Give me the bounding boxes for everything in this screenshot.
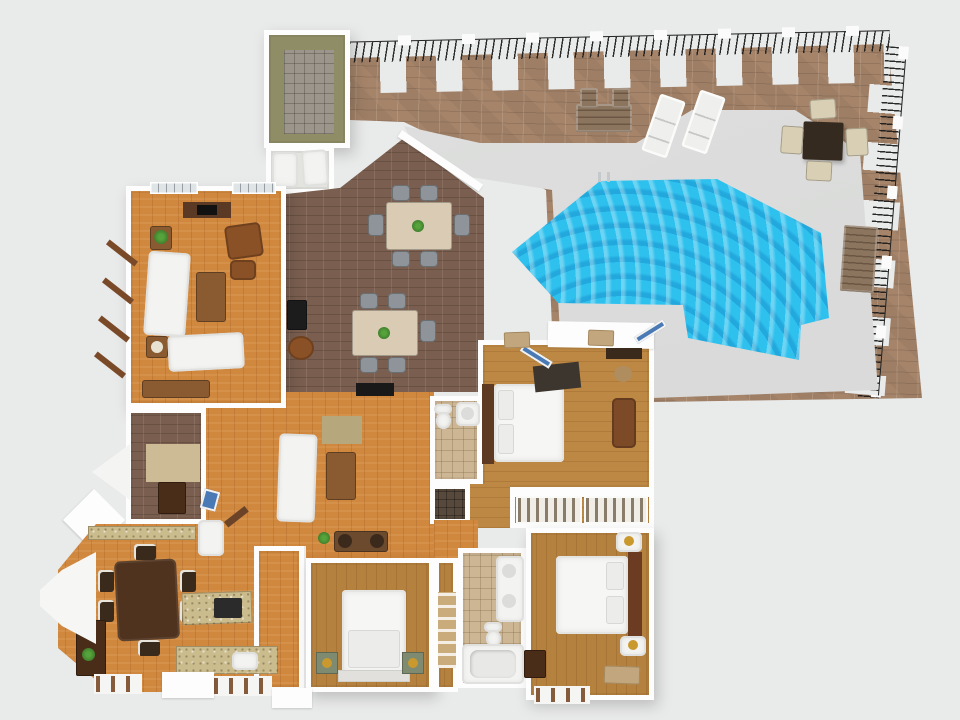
dining-chair — [360, 357, 378, 373]
speaker — [338, 534, 352, 548]
toilet-bowl — [436, 412, 451, 429]
lamp — [628, 640, 638, 650]
outdoor-chair — [580, 88, 598, 108]
speaker — [370, 534, 384, 548]
dining-chair — [368, 214, 384, 236]
basket — [614, 366, 632, 382]
pillow — [606, 562, 624, 590]
plant — [82, 648, 95, 661]
doormat — [604, 665, 641, 684]
window-sill — [214, 678, 270, 694]
kitchen-chair — [138, 640, 160, 656]
area-rug — [146, 444, 200, 482]
window — [150, 182, 198, 194]
window-sill — [96, 676, 140, 692]
kitchen-sink — [232, 652, 258, 670]
linen-shelves — [438, 592, 456, 668]
pillow — [498, 424, 514, 454]
utility-storage-bay — [284, 50, 334, 134]
front-stoop — [272, 688, 312, 708]
doormat — [588, 330, 615, 347]
pillow — [606, 596, 624, 624]
dining-chair — [392, 251, 410, 267]
ottoman — [230, 260, 256, 280]
swivel-chair — [288, 336, 314, 360]
pool-ladder — [598, 172, 612, 182]
dining-chair — [420, 185, 438, 201]
pergola-beam — [94, 352, 126, 379]
pillow-band — [348, 630, 400, 668]
tub-basin — [470, 650, 516, 678]
patio-chair — [780, 125, 804, 154]
plant — [318, 532, 330, 544]
dining-chair — [388, 293, 406, 309]
dining-chair — [420, 251, 438, 267]
patio-chair — [805, 160, 832, 181]
window-sill — [536, 688, 588, 702]
dryer — [301, 149, 329, 187]
kitchen-chair — [134, 544, 156, 560]
pantry-cabinet — [198, 520, 224, 556]
sink-counter — [176, 646, 278, 674]
wall-console — [606, 348, 642, 359]
area-rug — [533, 362, 581, 393]
clothes-rail — [518, 498, 580, 522]
centerpiece — [412, 220, 424, 232]
bench-chest — [612, 398, 636, 448]
sink-basin — [461, 407, 474, 420]
sofa — [143, 251, 191, 338]
sink-basin — [502, 564, 516, 578]
clothes-rail — [586, 498, 646, 522]
patio-chair — [809, 98, 836, 120]
headboard — [482, 384, 494, 464]
kitchen-chair — [98, 600, 114, 622]
walnut-dining-table — [114, 558, 180, 641]
headboard — [628, 552, 642, 638]
alcove-console — [158, 482, 186, 514]
garden-bench — [840, 225, 879, 293]
wall-tv — [356, 383, 394, 396]
counter — [88, 526, 196, 540]
centerpiece — [378, 327, 390, 339]
patio-dining-table — [802, 121, 843, 160]
pillow — [498, 390, 514, 420]
shower — [430, 484, 470, 524]
dining-chair — [360, 293, 378, 309]
armchair — [224, 222, 264, 261]
fireplace-insert — [197, 205, 217, 215]
outdoor-chair — [612, 88, 630, 108]
lamp — [322, 658, 332, 668]
dining-chair — [420, 320, 436, 342]
coffee-table — [326, 452, 356, 500]
outdoor-sofa — [576, 104, 632, 132]
doormat — [504, 332, 531, 349]
back-stoop — [162, 672, 214, 698]
headboard — [338, 670, 410, 682]
sofa — [276, 433, 317, 522]
floor-plan-canvas — [0, 0, 960, 720]
lamp — [151, 341, 163, 353]
plant — [154, 230, 168, 244]
dining-chair — [392, 185, 410, 201]
loveseat — [167, 332, 245, 372]
dining-chair — [388, 357, 406, 373]
corner-fireplace — [287, 300, 307, 330]
patio-chair — [845, 127, 868, 156]
kitchen-chair — [98, 570, 114, 592]
cabinet — [524, 650, 546, 678]
cooktop — [214, 598, 242, 618]
coffee-table — [196, 272, 226, 322]
console — [142, 380, 210, 398]
window — [232, 182, 276, 194]
dining-chair — [454, 214, 470, 236]
lamp — [408, 658, 418, 668]
kitchen-chair — [180, 570, 196, 592]
area-rug — [322, 416, 362, 444]
sink-basin — [502, 594, 516, 608]
lamp — [624, 536, 634, 546]
